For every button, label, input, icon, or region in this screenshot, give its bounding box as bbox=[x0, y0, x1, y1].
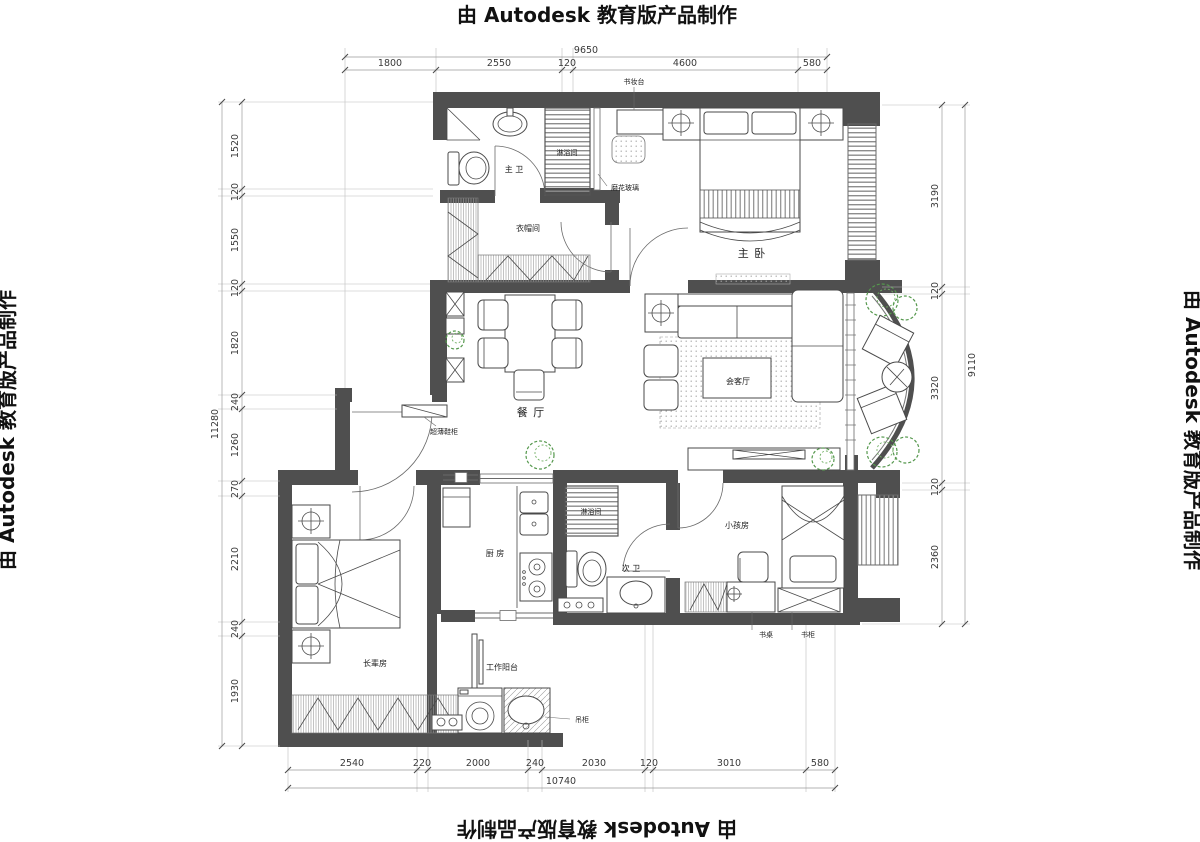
label-kids-room: 小孩房 bbox=[725, 520, 749, 530]
svg-text:120: 120 bbox=[930, 478, 941, 496]
sink-master bbox=[493, 108, 527, 136]
svg-text:1550: 1550 bbox=[230, 228, 241, 252]
svg-text:120: 120 bbox=[230, 279, 241, 297]
svg-text:2360: 2360 bbox=[930, 545, 941, 569]
watermark-right: 由 Autodesk 教育版产品制作 bbox=[1181, 290, 1200, 570]
label-elder-room: 长辈房 bbox=[363, 658, 387, 668]
label-kitchen: 厨 房 bbox=[486, 548, 505, 558]
nightstand-left bbox=[663, 108, 700, 140]
watermark-left: 由 Autodesk 教育版产品制作 bbox=[0, 290, 19, 570]
svg-text:240: 240 bbox=[230, 620, 241, 638]
svg-text:120: 120 bbox=[558, 58, 576, 69]
svg-text:120: 120 bbox=[230, 183, 241, 201]
toilet-master bbox=[448, 152, 489, 185]
label-bookcase: 书柜 bbox=[801, 630, 815, 639]
label-desk: 书桌 bbox=[759, 630, 773, 639]
label-hanging-cabinet: 吊柜 bbox=[575, 715, 589, 724]
label-shoe-cabinet: 超薄鞋柜 bbox=[430, 427, 458, 436]
floor-plan-svg: 主 卫 淋浴间 书妆台 磨花玻璃 衣帽间 主 卧 餐 厅 超薄鞋柜 会客厅 厨 … bbox=[0, 0, 1200, 842]
svg-text:2540: 2540 bbox=[340, 758, 364, 769]
second-bath-set bbox=[558, 486, 665, 613]
svg-text:120: 120 bbox=[930, 282, 941, 300]
svg-text:3320: 3320 bbox=[930, 376, 941, 400]
watermark-bottom: 由 Autodesk 教育版产品制作 bbox=[457, 817, 737, 841]
living-set bbox=[644, 290, 843, 428]
label-master-bath: 主 卫 bbox=[505, 164, 524, 174]
svg-text:1820: 1820 bbox=[230, 331, 241, 355]
dim-top-total: 9650 bbox=[574, 45, 598, 56]
label-shower-second: 淋浴间 bbox=[581, 507, 602, 516]
svg-text:580: 580 bbox=[811, 758, 829, 769]
shoe-cabinet bbox=[402, 405, 447, 417]
svg-text:1930: 1930 bbox=[230, 679, 241, 703]
dim-right-total: 9110 bbox=[967, 353, 978, 377]
svg-text:220: 220 bbox=[413, 758, 431, 769]
svg-text:4600: 4600 bbox=[673, 58, 697, 69]
label-second-bath: 次 卫 bbox=[622, 563, 641, 573]
floor-plan-page: 主 卫 淋浴间 书妆台 磨花玻璃 衣帽间 主 卧 餐 厅 超薄鞋柜 会客厅 厨 … bbox=[0, 0, 1200, 842]
kitchen-set bbox=[443, 486, 552, 608]
label-master-bedroom: 主 卧 bbox=[738, 247, 767, 260]
dim-left-total: 11280 bbox=[210, 409, 221, 439]
work-balcony-set bbox=[432, 634, 550, 733]
label-living: 会客厅 bbox=[726, 376, 750, 386]
watermark-top: 由 Autodesk 教育版产品制作 bbox=[457, 3, 737, 27]
svg-text:1260: 1260 bbox=[230, 433, 241, 457]
label-frosted-glass: 磨花玻璃 bbox=[611, 183, 639, 192]
label-shower-master: 淋浴间 bbox=[557, 148, 578, 157]
kids-room-set bbox=[685, 486, 844, 612]
svg-text:120: 120 bbox=[640, 758, 658, 769]
svg-text:2210: 2210 bbox=[230, 547, 241, 571]
svg-text:2000: 2000 bbox=[466, 758, 490, 769]
label-dining: 餐 厅 bbox=[517, 405, 546, 419]
dim-bottom-total: 10740 bbox=[546, 776, 576, 787]
dining-set bbox=[478, 295, 582, 400]
nightstand-right bbox=[800, 108, 843, 140]
svg-text:240: 240 bbox=[526, 758, 544, 769]
tv-cabinet bbox=[688, 448, 840, 470]
svg-text:3190: 3190 bbox=[930, 184, 941, 208]
label-closet: 衣帽间 bbox=[516, 223, 540, 233]
label-dresser-desk: 书妆台 bbox=[624, 77, 645, 86]
svg-text:1520: 1520 bbox=[230, 134, 241, 158]
svg-text:2030: 2030 bbox=[582, 758, 606, 769]
svg-text:2550: 2550 bbox=[487, 58, 511, 69]
dining-cabinets bbox=[446, 292, 464, 382]
svg-text:270: 270 bbox=[230, 480, 241, 498]
dresser-desk bbox=[612, 110, 663, 163]
svg-text:240: 240 bbox=[230, 393, 241, 411]
corner-shower bbox=[447, 108, 480, 140]
svg-text:580: 580 bbox=[803, 58, 821, 69]
svg-text:1800: 1800 bbox=[378, 58, 402, 69]
svg-text:3010: 3010 bbox=[717, 758, 741, 769]
label-work-balcony: 工作阳台 bbox=[486, 662, 518, 672]
